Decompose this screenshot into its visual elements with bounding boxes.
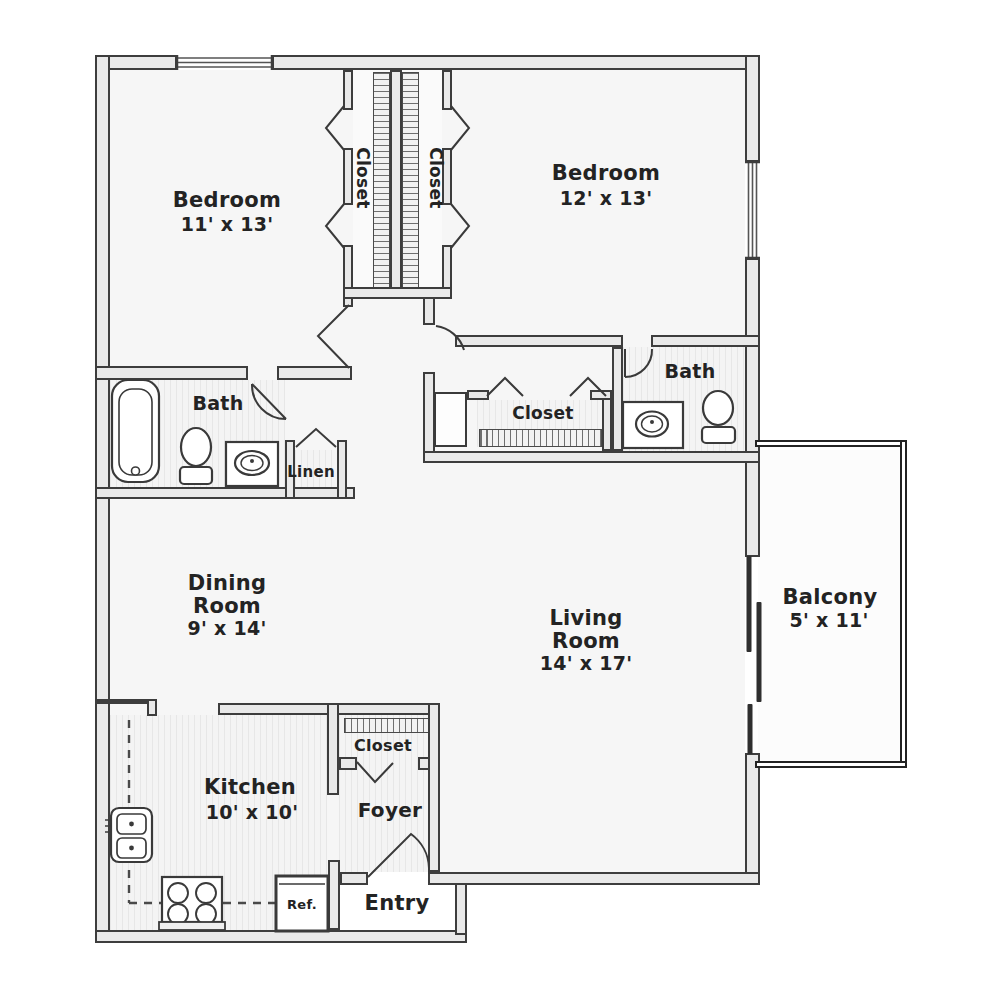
bedroom1-label: Bedroom (173, 190, 281, 211)
sink-left-icon (226, 442, 278, 486)
dining-label-2: Room (193, 596, 261, 617)
toilet-right-icon (702, 391, 735, 443)
closet-right-label: Closet (427, 147, 444, 209)
closet-right-bifold-icon (451, 106, 469, 248)
bedroom2-dims: 12' x 13' (560, 189, 653, 208)
bedroom1-door-icon (318, 305, 349, 368)
bedroom2-door-icon (436, 326, 464, 350)
dining-dims: 9' x 14' (187, 619, 266, 638)
balcony-dims: 5' x 11' (789, 611, 868, 630)
refrigerator-label: Ref. (287, 898, 317, 911)
linen-door-icon (296, 429, 336, 447)
bathtub-icon (112, 380, 159, 482)
bath-left-label: Bath (192, 394, 243, 413)
kitchen-dims: 10' x 10' (206, 803, 299, 822)
closet-left-bifold-icon (326, 106, 344, 248)
bedroom2-label: Bedroom (552, 163, 660, 184)
linen-label: Linen (287, 465, 335, 480)
foyer-closet-door-icon (357, 762, 393, 782)
foyer-closet-label: Closet (354, 738, 412, 754)
stove-icon (159, 877, 225, 930)
bath-right-door-icon (625, 349, 652, 377)
hall-closet-label: Closet (512, 405, 574, 422)
kitchen-label: Kitchen (204, 777, 296, 798)
floor-plan: Bedroom 11' x 13' Bedroom 12' x 13' Clos… (0, 0, 1000, 1000)
window-right-icon (745, 162, 760, 258)
toilet-left-icon (180, 428, 212, 484)
hall-closet-bifold-icon (487, 378, 606, 396)
sink-right-icon (623, 402, 683, 448)
bath-left-door-icon (252, 384, 286, 419)
bath-right-label: Bath (664, 362, 715, 381)
kitchen-sink-icon (105, 808, 152, 862)
living-dims: 14' x 17' (540, 654, 633, 673)
bedroom1-dims: 11' x 13' (181, 215, 274, 234)
foyer-label: Foyer (358, 800, 423, 820)
entry-label: Entry (365, 893, 430, 914)
window-top-icon (177, 55, 272, 70)
dining-label-1: Dining (188, 573, 267, 594)
living-label-2: Room (552, 631, 620, 652)
balcony-label: Balcony (783, 587, 878, 608)
closet-left-label: Closet (354, 147, 371, 209)
sliding-door-icon (747, 556, 762, 754)
plan-glyphs (0, 0, 1000, 1000)
entry-door-icon (368, 834, 429, 877)
living-label-1: Living (549, 608, 622, 629)
